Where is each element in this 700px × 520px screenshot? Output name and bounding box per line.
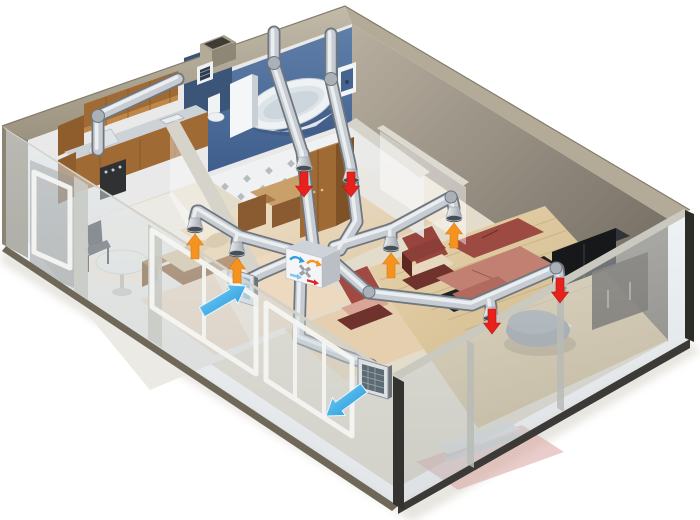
front-corner-post bbox=[393, 376, 404, 510]
ventilation-system-illustration bbox=[0, 0, 700, 520]
glass-mullion bbox=[467, 340, 474, 468]
bathroom-niche-shelf bbox=[338, 62, 356, 98]
apartment-cutaway-scene bbox=[0, 0, 700, 520]
right-corner-post bbox=[685, 210, 694, 342]
glass-mullion bbox=[557, 288, 564, 412]
glass-mullion bbox=[74, 176, 88, 300]
